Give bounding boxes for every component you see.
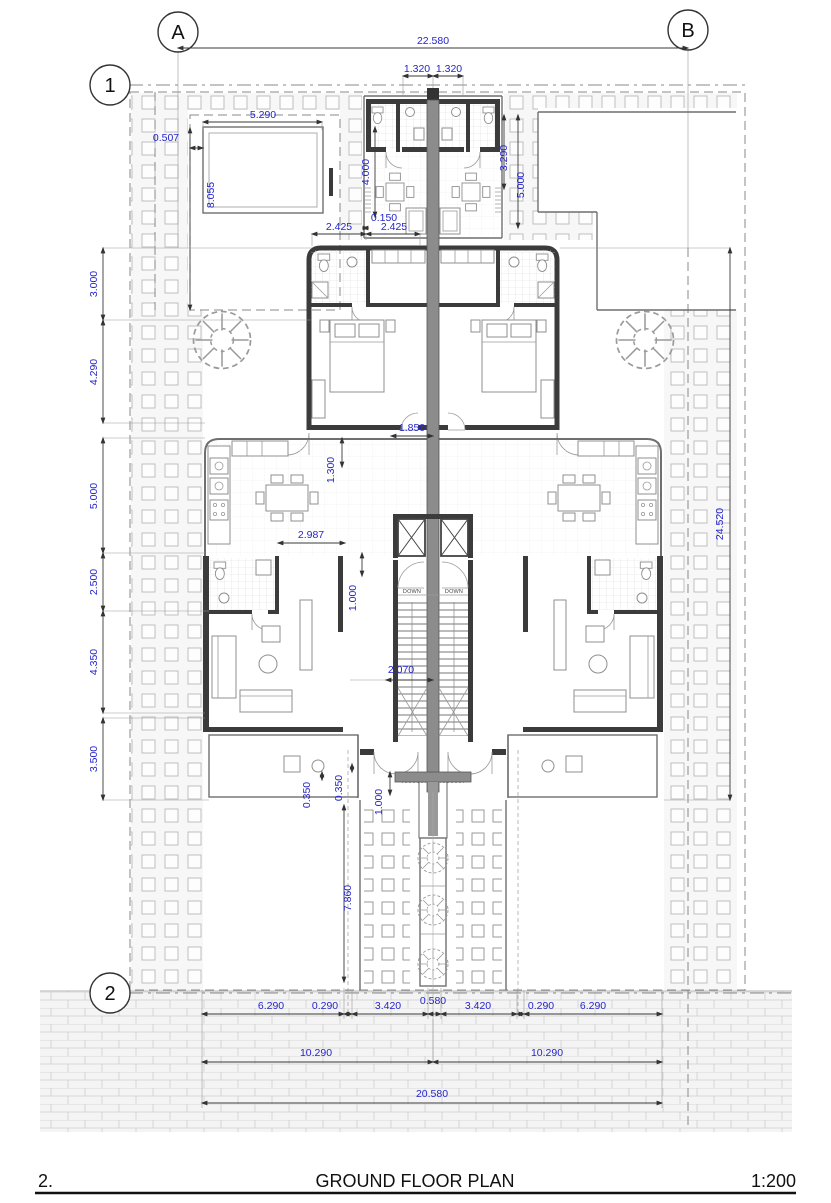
dim-core-half-right: 1.320 — [436, 63, 462, 75]
grid-marker-column-a: A — [158, 12, 198, 52]
dim-patio-step-a: 0.350 — [301, 782, 313, 808]
dim-left-2: 4.290 — [88, 359, 100, 385]
dim-hall-depth: 1.300 — [325, 457, 337, 483]
party-wall-spine — [427, 88, 439, 792]
dim-patio-step-b: 0.350 — [333, 775, 345, 801]
dim-terrace-bay-left: 2.425 — [326, 221, 352, 233]
dim-unit-left: 10.290 — [300, 1047, 332, 1059]
grid-marker-column-b: B — [668, 10, 708, 50]
grid-marker-row-1: 1 — [90, 65, 130, 105]
stair-down-label-left: DOWN — [403, 589, 421, 595]
dim-stair-landing: 1.000 — [347, 585, 359, 611]
dim-living-width: 2.987 — [298, 529, 324, 541]
dim-left-4: 2.500 — [88, 569, 100, 595]
grid-marker-row-2: 2 — [90, 973, 130, 1013]
sheet-title: GROUND FLOOR PLAN — [315, 1171, 514, 1191]
stair-down-label-right: DOWN — [445, 589, 463, 595]
dim-left-5: 4.350 — [88, 649, 100, 675]
ground-floor-plan-drawing: DOWN DOWN A B 1 2 22.580 1.320 1.320 5.2… — [0, 0, 831, 1203]
dim-bottom-4: 3.420 — [465, 1000, 491, 1012]
dim-core-half-left: 1.320 — [404, 63, 430, 75]
dim-yard-depth: 8.055 — [205, 182, 217, 208]
dim-left-6: 3.500 — [88, 746, 100, 772]
grid-label-1: 1 — [104, 75, 115, 97]
dim-bottom-3: 3.420 — [375, 1000, 401, 1012]
dim-building-width: 20.580 — [416, 1088, 448, 1100]
dim-path-split: 0.580 — [420, 995, 446, 1007]
grid-label-2: 2 — [104, 983, 115, 1005]
dim-terrace-inner-depth: 3.290 — [498, 145, 510, 171]
dim-bottom-6: 6.290 — [580, 1000, 606, 1012]
dim-bottom-5: 0.290 — [528, 1000, 554, 1012]
drawing-sheet: DOWN DOWN A B 1 2 22.580 1.320 1.320 5.2… — [0, 0, 831, 1203]
dim-carport-offset: 0.507 — [153, 132, 179, 144]
dim-stair-clearance: 2.070 — [388, 664, 414, 676]
dim-unit-right: 10.290 — [531, 1047, 563, 1059]
dim-bedroom-opening: 1.850 — [399, 422, 425, 434]
title-block: 2. GROUND FLOOR PLAN 1:200 — [35, 1171, 796, 1193]
dim-left-3: 5.000 — [88, 483, 100, 509]
dim-site-width: 22.580 — [417, 35, 449, 47]
sheet-scale: 1:200 — [751, 1171, 796, 1191]
dim-entry-depth: 1.000 — [373, 789, 385, 815]
dim-carport-width: 5.290 — [250, 109, 276, 121]
dim-bottom-2: 0.290 — [312, 1000, 338, 1012]
street-paving — [40, 991, 792, 1132]
dim-walkway-length: 7.860 — [342, 885, 354, 911]
dim-bottom-1: 6.290 — [258, 1000, 284, 1012]
dim-carport-depth: 4.000 — [360, 159, 372, 185]
dim-terrace-depth: 5.000 — [515, 172, 527, 198]
dim-left-1: 3.000 — [88, 271, 100, 297]
grid-label-b: B — [681, 20, 694, 42]
grid-label-a: A — [171, 22, 185, 44]
dim-terrace-bay-right: 2.425 — [381, 221, 407, 233]
sheet-number: 2. — [38, 1171, 53, 1191]
dim-building-depth: 24.520 — [714, 508, 726, 540]
